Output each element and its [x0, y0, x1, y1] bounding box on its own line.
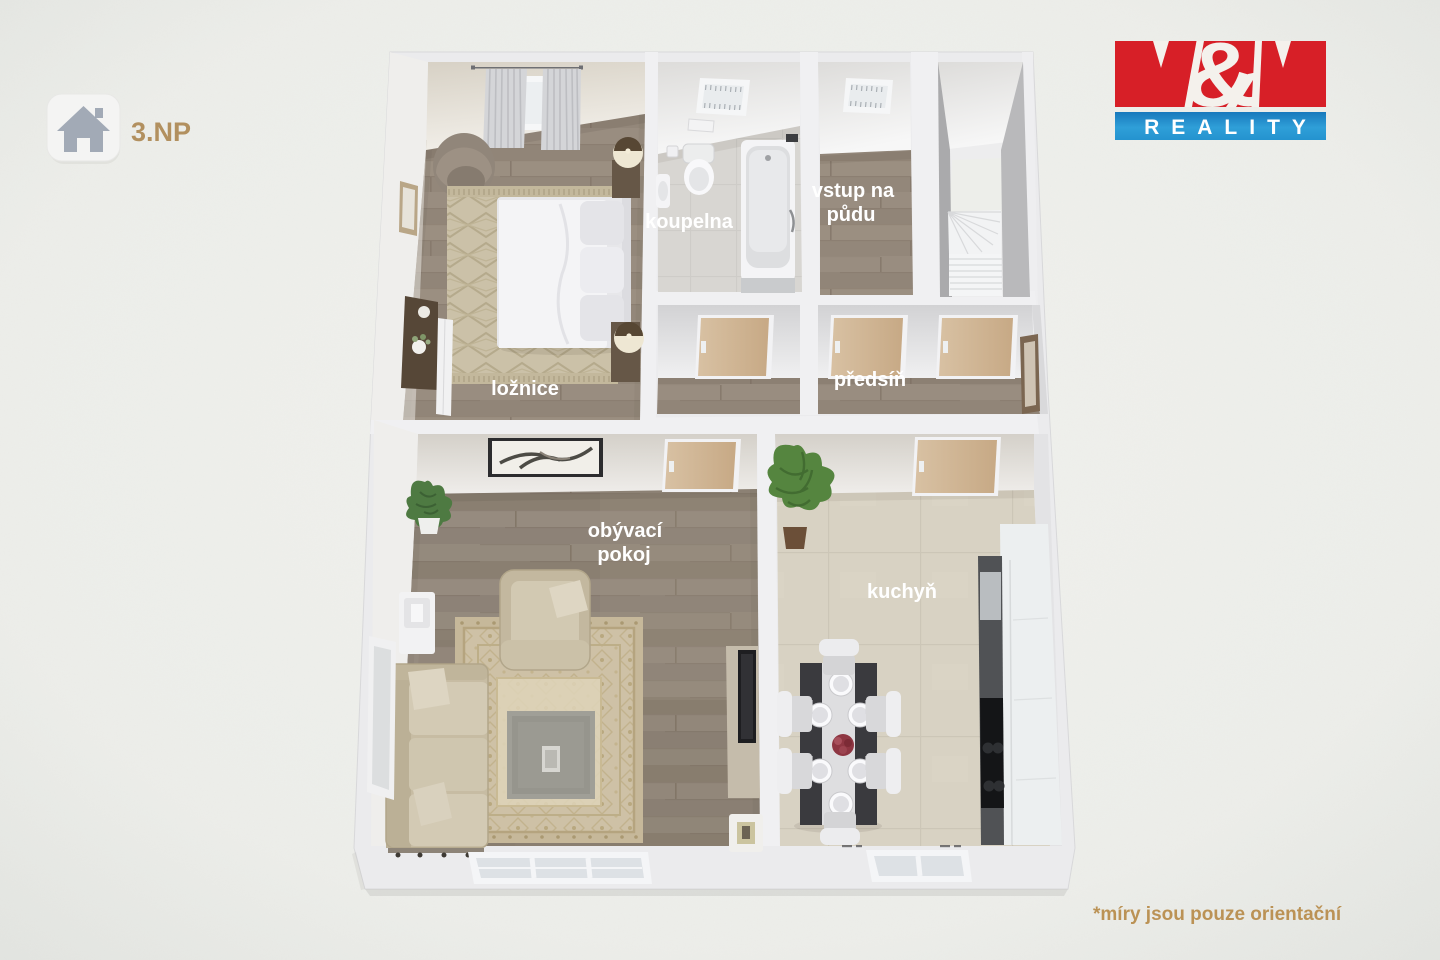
svg-text:předsíň: předsíň: [834, 369, 906, 391]
svg-text:*míry jsou pouze orientační: *míry jsou pouze orientační: [1093, 904, 1342, 925]
svg-text:pokoj: pokoj: [597, 544, 650, 566]
svg-text:ložnice: ložnice: [491, 378, 559, 400]
svg-text:kuchyň: kuchyň: [867, 581, 937, 603]
svg-text:koupelna: koupelna: [645, 211, 734, 233]
svg-text:REALITY: REALITY: [1144, 116, 1318, 139]
svg-text:3.NP: 3.NP: [131, 117, 191, 147]
svg-text:půdu: půdu: [827, 204, 876, 226]
svg-text:obývací: obývací: [588, 520, 664, 542]
svg-text:&: &: [1184, 23, 1258, 126]
svg-text:vstup na: vstup na: [812, 180, 895, 202]
